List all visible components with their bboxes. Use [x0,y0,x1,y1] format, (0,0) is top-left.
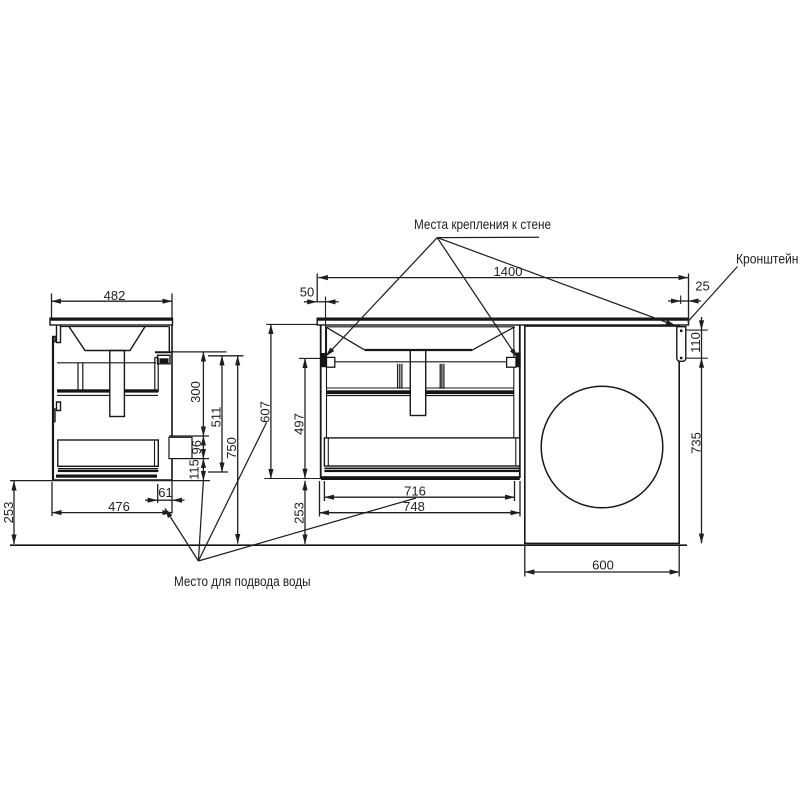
svg-text:716: 716 [404,483,426,498]
svg-text:50: 50 [300,285,314,300]
svg-text:511: 511 [208,407,223,428]
svg-text:Места крепления к стене: Места крепления к стене [414,217,551,232]
svg-text:Место для подвода воды: Место для подвода воды [174,574,311,589]
svg-text:253: 253 [292,502,307,524]
svg-text:300: 300 [188,381,203,403]
svg-text:750: 750 [224,437,239,459]
svg-text:Кронштейн: Кронштейн [736,252,799,267]
svg-text:748: 748 [403,499,425,514]
svg-text:497: 497 [292,413,307,435]
svg-text:253: 253 [1,502,16,524]
svg-text:607: 607 [257,401,272,423]
svg-text:115: 115 [187,459,202,480]
svg-text:735: 735 [688,432,703,454]
svg-text:476: 476 [108,499,130,514]
svg-text:1400: 1400 [494,264,523,279]
svg-text:110: 110 [688,332,703,353]
svg-text:61: 61 [158,485,172,500]
svg-text:600: 600 [592,558,614,573]
svg-text:96: 96 [189,440,204,454]
svg-text:482: 482 [104,288,126,303]
svg-text:25: 25 [695,279,709,294]
